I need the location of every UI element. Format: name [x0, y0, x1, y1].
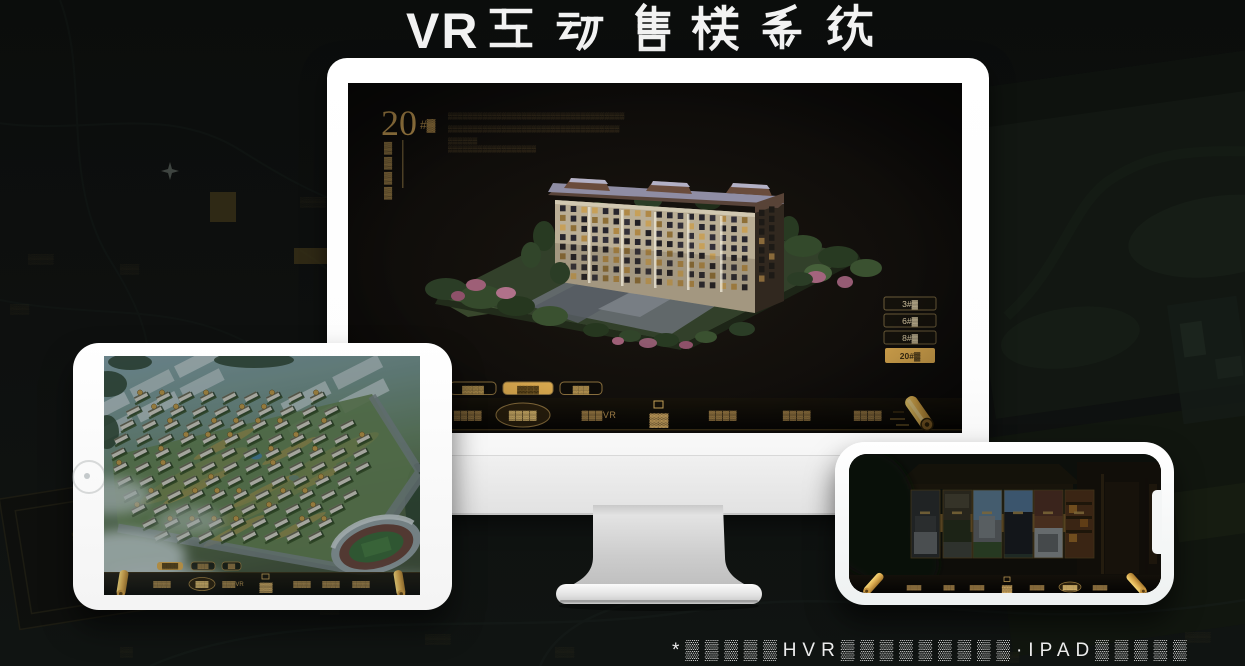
- svg-text:▓▓▓▓: ▓▓▓▓: [907, 584, 922, 591]
- svg-text:▒▒▒▒: ▒▒▒▒: [300, 197, 326, 208]
- svg-text:▓▓▓▓: ▓▓▓▓: [1093, 584, 1108, 591]
- svg-text:▓▓: ▓▓: [1002, 585, 1013, 593]
- svg-text:▒▒▒: ▒▒▒: [10, 304, 30, 315]
- svg-text:▒▒▒: ▒▒▒: [120, 264, 140, 275]
- svg-text:▒▒▒▒: ▒▒▒▒: [425, 634, 451, 645]
- svg-text:▓▓▓: ▓▓▓: [944, 584, 955, 591]
- svg-text:▓▓▓▓: ▓▓▓▓: [1063, 584, 1078, 591]
- svg-text:▓▓▓▓: ▓▓▓▓: [1030, 584, 1045, 591]
- svg-text:▒▒: ▒▒: [120, 647, 133, 658]
- svg-text:▓▓▓▓: ▓▓▓▓: [970, 584, 985, 591]
- svg-text:▒▒▒▒: ▒▒▒▒: [28, 254, 54, 265]
- svg-text:▒▒▒: ▒▒▒: [555, 647, 575, 658]
- svg-text:VR: VR: [406, 3, 479, 59]
